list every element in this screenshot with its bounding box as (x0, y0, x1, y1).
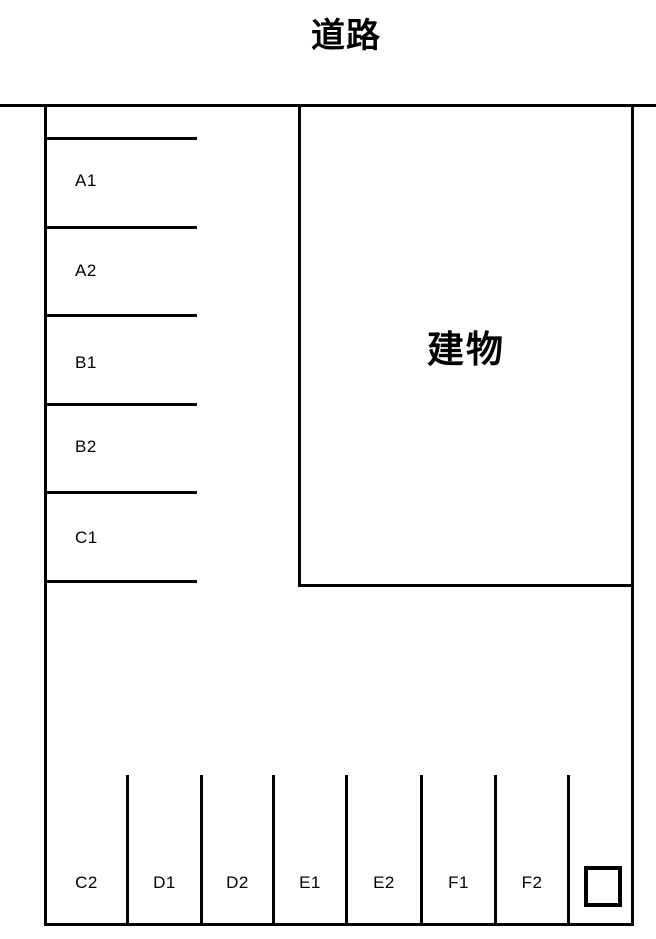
stall-divider-line (567, 775, 570, 923)
stall-divider-line (44, 314, 197, 317)
stall-divider-line (420, 775, 423, 923)
stall-divider-line (345, 775, 348, 923)
space-label-b1: B1 (75, 353, 97, 373)
stall-divider-line (494, 775, 497, 923)
building-label: 建物 (427, 319, 505, 373)
stall-divider-line (200, 775, 203, 923)
space-label-d2: D2 (203, 873, 272, 893)
small-square-marker (584, 866, 622, 907)
building-outline: 建物 (298, 104, 634, 587)
space-label-c1: C1 (75, 528, 98, 548)
stall-divider-line (126, 775, 129, 923)
stall-divider-line (44, 580, 197, 583)
space-label-d1: D1 (129, 873, 200, 893)
space-label-f1: F1 (423, 873, 494, 893)
stall-divider-line (44, 403, 197, 406)
space-label-a2: A2 (75, 261, 97, 281)
stall-divider-line (272, 775, 275, 923)
space-label-a1: A1 (75, 171, 97, 191)
space-label-b2: B2 (75, 437, 97, 457)
space-label-f2: F2 (497, 873, 567, 893)
stall-divider-line (44, 491, 197, 494)
space-label-e2: E2 (348, 873, 420, 893)
stall-divider-line (44, 226, 197, 229)
stall-divider-line (44, 137, 197, 140)
road-label: 道路 (280, 18, 412, 54)
space-label-e1: E1 (275, 873, 345, 893)
parking-lot-diagram: 道路 建物 A1 A2 B1 B2 C1 C2 D1 D2 E1 E2 F1 F… (0, 0, 656, 939)
space-label-c2: C2 (47, 873, 126, 893)
